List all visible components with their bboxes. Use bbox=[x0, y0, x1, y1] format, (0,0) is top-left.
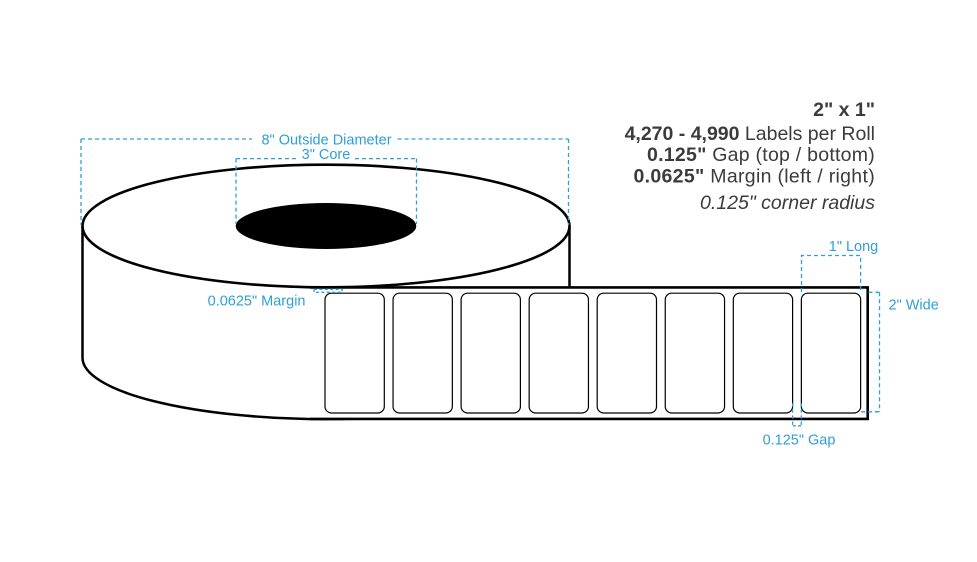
svg-text:0.0625" Margin: 0.0625" Margin bbox=[208, 294, 306, 310]
svg-text:2" x 1": 2" x 1" bbox=[813, 99, 875, 121]
svg-text:8" Outside Diameter: 8" Outside Diameter bbox=[261, 132, 391, 148]
svg-text:0.125" corner radius: 0.125" corner radius bbox=[700, 192, 875, 214]
svg-text:4,270 - 4,990 Labels per Roll: 4,270 - 4,990 Labels per Roll bbox=[625, 123, 875, 145]
svg-text:1" Long: 1" Long bbox=[829, 239, 879, 255]
svg-text:0.125" Gap: 0.125" Gap bbox=[763, 432, 836, 448]
svg-text:0.0625" Margin (left / right): 0.0625" Margin (left / right) bbox=[633, 165, 875, 187]
svg-text:0.125" Gap (top / bottom): 0.125" Gap (top / bottom) bbox=[647, 144, 875, 166]
svg-text:2" Wide: 2" Wide bbox=[889, 298, 939, 314]
svg-text:3" Core: 3" Core bbox=[302, 147, 351, 163]
